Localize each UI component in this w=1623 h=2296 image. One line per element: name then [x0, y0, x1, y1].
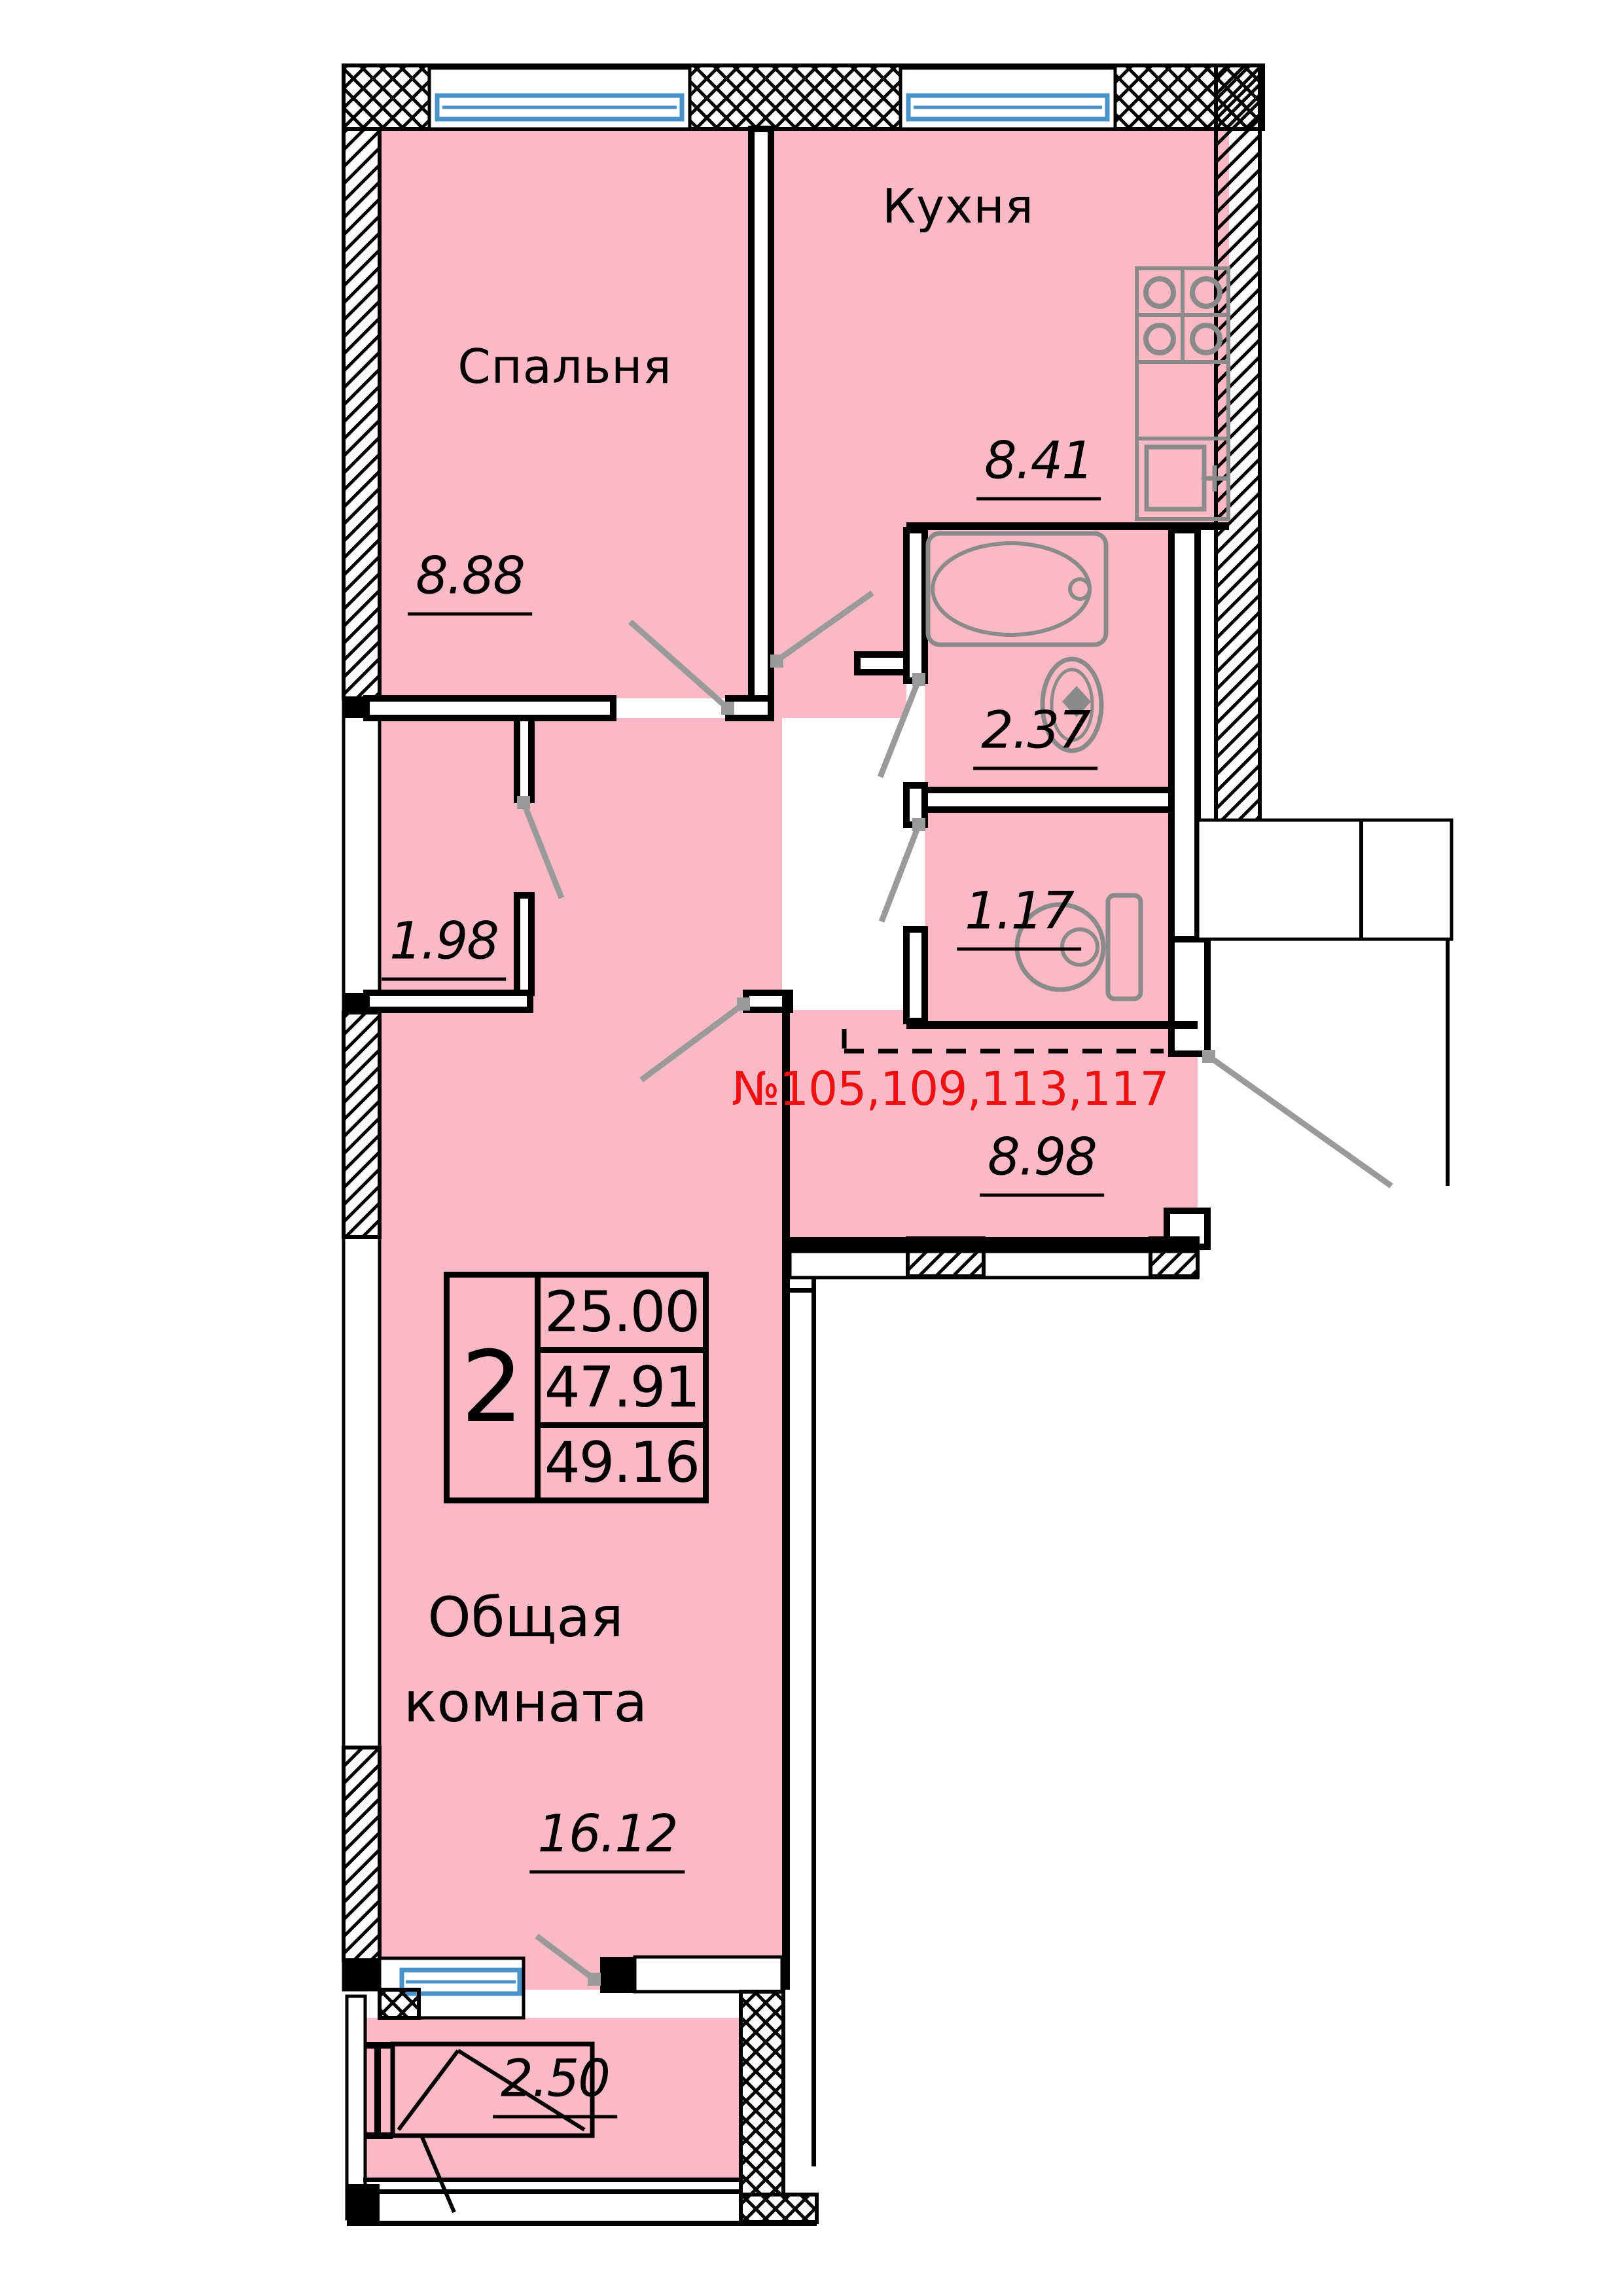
bathroom-left-wall-c [906, 929, 925, 1021]
closet-right-wall-b [517, 895, 531, 993]
left-wall-hatch-living-top [344, 1013, 380, 1237]
closet-bottom-wall [366, 993, 530, 1010]
bath-toilet-divider [925, 790, 1171, 810]
living-right-wall [782, 993, 790, 1990]
closet-right-wall-a [517, 718, 531, 800]
building-edge-line [811, 1276, 816, 2166]
toilet-bottom-wall [906, 1021, 1198, 1029]
hall-bottom-wall [790, 1237, 1198, 1251]
floor-plan-drawing [0, 0, 1623, 2296]
total-area: 49.16 [541, 1422, 703, 1498]
balcony-bottom-edge [347, 2221, 817, 2226]
hall-area: 8.98 [980, 1128, 1104, 1197]
balcony-area: 2.50 [493, 2050, 617, 2119]
bedroom-kitchen-partition [751, 129, 771, 698]
bedroom-area: 8.88 [408, 547, 532, 616]
apartment-area: 47.91 [541, 1347, 703, 1422]
bathroom-left-wall-a [906, 530, 925, 681]
entrance-wall-top [1171, 939, 1207, 1054]
floor-plan-page: Спальня Кухня 8.88 8.41 2.37 1.17 1.98 8… [0, 0, 1623, 2296]
living-room-label: Общая комната [382, 1575, 669, 1745]
kitchen-area: 8.41 [976, 432, 1101, 501]
stove-icon [1137, 268, 1228, 362]
unit-numbers: №105,109,113,117 [732, 1062, 1169, 1116]
kitchen-label: Кухня [882, 179, 1034, 234]
left-wall-hatch-bedroom [344, 129, 380, 698]
kitchen-bathroom-wall [906, 522, 1229, 530]
bedroom-bottom-wall [366, 698, 613, 718]
right-wall-hatch [1216, 65, 1260, 857]
left-wall-hatch-living-bottom [344, 1748, 380, 1960]
bathroom-area: 2.37 [973, 702, 1097, 770]
living-area-total: 25.00 [541, 1278, 703, 1347]
bedroom-label: Спальня [457, 339, 671, 394]
entrance-door [1202, 1050, 1391, 1186]
ventilation-shaft [1198, 820, 1452, 939]
toilet-door [882, 818, 925, 922]
apartment-info-box: 2 25.00 47.91 49.16 [444, 1272, 709, 1503]
living-area: 16.12 [529, 1805, 685, 1874]
toilet-area: 1.17 [957, 882, 1081, 951]
closet-area: 1.98 [382, 912, 506, 981]
balcony-right-wall [741, 1992, 783, 2195]
rooms-count: 2 [450, 1278, 541, 1498]
